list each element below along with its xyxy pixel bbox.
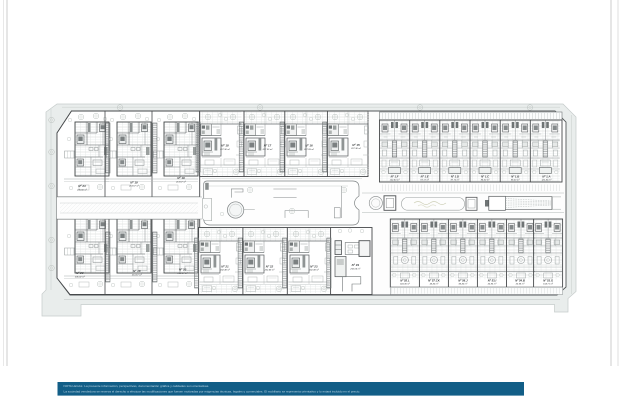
svg-text:207.90 m²: 207.90 m² [262,148,273,151]
svg-text:207.36 m²: 207.36 m² [350,147,361,150]
svg-text:232.07 m²: 232.07 m² [177,272,188,275]
svg-text:Nº 1.B: Nº 1.B [511,175,519,179]
svg-text:Nº 15: Nº 15 [352,143,360,147]
svg-text:Nº 39: Nº 39 [352,263,360,267]
svg-text:87.72 m²: 87.72 m² [420,179,429,182]
svg-text:NOTA LEGAL: La presente inform: NOTA LEGAL: La presente información, per… [64,384,210,388]
svg-text:235.60 m²: 235.60 m² [76,188,87,191]
svg-text:Nº 1.F: Nº 1.F [391,175,399,179]
svg-text:34.43 m²: 34.43 m² [430,283,439,286]
svg-text:Nº 17: Nº 17 [264,144,272,148]
svg-text:Nº 23: Nº 23 [310,265,318,269]
svg-text:232.48 m²: 232.48 m² [219,268,230,271]
svg-text:Nº 23: Nº 23 [78,184,86,188]
svg-text:236.92 m²: 236.92 m² [74,276,85,279]
svg-text:232.48 m²: 232.48 m² [308,268,319,271]
svg-text:Nº 20: Nº 20 [76,271,84,275]
svg-text:Nº 20: Nº 20 [179,268,187,272]
svg-text:86.30 m²: 86.30 m² [481,179,490,182]
svg-text:86.30 m²: 86.30 m² [511,179,520,182]
svg-text:Nº 53.G: Nº 53.G [543,279,554,283]
svg-text:33.85 m²: 33.85 m² [488,283,497,286]
svg-text:Nº 18: Nº 18 [221,144,229,148]
svg-text:207.89 m²: 207.89 m² [303,148,314,151]
svg-text:Nº 21: Nº 21 [221,265,229,269]
svg-text:Nº 57.CK: Nº 57.CK [428,279,441,283]
svg-text:232.48 m²: 232.48 m² [264,268,275,271]
svg-text:213.67 m²: 213.67 m² [175,180,186,183]
svg-text:122.43 m²: 122.43 m² [390,179,400,182]
svg-text:Nº 19: Nº 19 [130,180,138,184]
svg-text:Nº 22: Nº 22 [266,265,274,269]
svg-text:Nº 54.B: Nº 54.B [515,279,525,283]
svg-text:87.72 m²: 87.72 m² [451,179,460,182]
svg-text:213.67 m²: 213.67 m² [131,274,142,277]
svg-text:104.71 m²: 104.71 m² [543,283,553,286]
svg-text:Nº 56.J: Nº 56.J [458,279,468,283]
svg-text:84.43 m²: 84.43 m² [459,283,468,286]
svg-text:207.90 m²: 207.90 m² [219,148,230,151]
svg-text:Nº 18: Nº 18 [133,269,141,273]
svg-text:Nº 16: Nº 16 [305,144,313,148]
svg-text:Nº 1.C: Nº 1.C [481,175,490,179]
svg-text:Nº 55.L: Nº 55.L [400,279,410,283]
svg-text:Nº 1.E: Nº 1.E [421,175,429,179]
svg-text:Nº 19: Nº 19 [177,176,185,180]
svg-text:143.36 m²: 143.36 m² [400,283,410,286]
svg-text:Nº 1.A: Nº 1.A [542,175,550,179]
svg-text:Nº 1.D: Nº 1.D [451,175,459,179]
svg-text:Nº 53.I: Nº 53.I [488,279,497,283]
svg-text:33.98 m²: 33.98 m² [516,283,525,286]
svg-text:292.06 m²: 292.06 m² [349,268,360,271]
svg-text:122.43 m²: 122.43 m² [541,179,551,182]
svg-text:La sociedad vendedora se reser: La sociedad vendedora se reserva el dere… [64,389,361,393]
svg-text:213.67 m²: 213.67 m² [128,185,139,188]
